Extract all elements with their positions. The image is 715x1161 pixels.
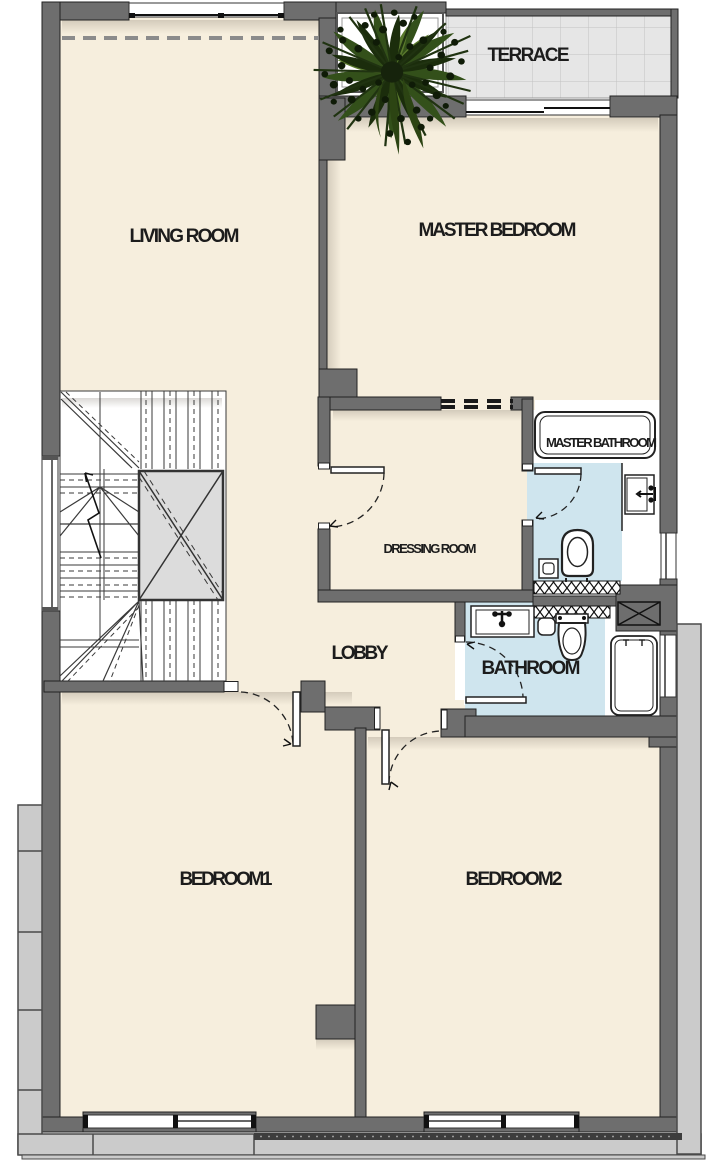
svg-text:MASTER BEDROOM: MASTER BEDROOM [419, 220, 577, 241]
svg-text:BEDROOM1: BEDROOM1 [180, 869, 273, 890]
svg-text:LIVING ROOM: LIVING ROOM [130, 226, 240, 247]
svg-text:LOBBY: LOBBY [332, 643, 389, 664]
svg-text:MASTER BATHROOM: MASTER BATHROOM [546, 435, 657, 450]
svg-text:BEDROOM2: BEDROOM2 [466, 869, 563, 890]
svg-text:TERRACE: TERRACE [488, 45, 570, 66]
svg-text:BATHROOM: BATHROOM [482, 658, 581, 679]
svg-text:DRESSING ROOM: DRESSING ROOM [384, 541, 477, 556]
